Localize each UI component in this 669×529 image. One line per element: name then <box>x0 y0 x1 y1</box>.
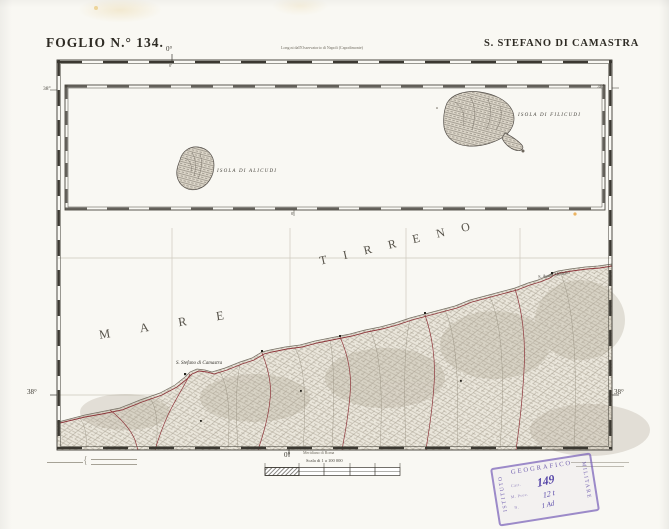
fine-print-left <box>47 462 83 463</box>
stamp-word-militare: MILITARE <box>580 458 593 502</box>
lon-label-inset: 0' <box>291 211 294 216</box>
fine-print-left <box>91 459 137 460</box>
sheet-title: S. STEFANO DI CAMASTRA <box>484 38 639 49</box>
town-label-s-stefano: S. Stefano di Camastra <box>176 361 222 366</box>
stamp-field-cart: Cart. <box>511 482 522 489</box>
lat-label-right-bottom: 38° <box>614 388 624 396</box>
lon-label-top-minor: 0' <box>169 63 172 68</box>
island-label-alicudi: ISOLA DI ALICUDI <box>217 169 277 174</box>
lat-label-left-top: 38° <box>43 86 51 92</box>
scale-bar <box>265 463 400 476</box>
credits-brace: { <box>83 455 88 466</box>
fine-print-left <box>91 464 137 465</box>
meridian-note: Meridiano di Roma <box>303 450 334 455</box>
longitude-note: Long.ni dall'Osservatorio di Napoli (Cap… <box>281 45 363 50</box>
lon-label-bottom: 0° <box>284 451 290 459</box>
lon-label-top: 0° <box>166 45 172 53</box>
stamp-handwritten-1ad: 1 Ad <box>541 499 554 510</box>
island-alicudi <box>177 147 214 190</box>
paper-speck <box>94 6 98 10</box>
map-sheet: FOGLIO N.° 134. S. STEFANO DI CAMASTRA L… <box>0 0 669 529</box>
lat-label-right-top: 38° <box>597 84 605 90</box>
paper-speck <box>573 212 576 215</box>
sheet-number: FOGLIO N.° 134. <box>46 35 164 51</box>
lat-label-left-bottom: 38° <box>27 388 37 396</box>
mainland <box>57 264 650 456</box>
stamp-field-n: N. <box>514 504 520 510</box>
stamp-word-istituto: ISTITUTO <box>497 471 510 515</box>
island-filicudi <box>436 91 524 152</box>
island-label-filicudi: ISOLA DI FILICUDI <box>518 113 581 118</box>
inset-frame <box>65 85 605 210</box>
scale-text: Scala di 1 a 100 000 <box>306 458 343 463</box>
stamp-field-prov: M. Prov. <box>510 492 528 500</box>
